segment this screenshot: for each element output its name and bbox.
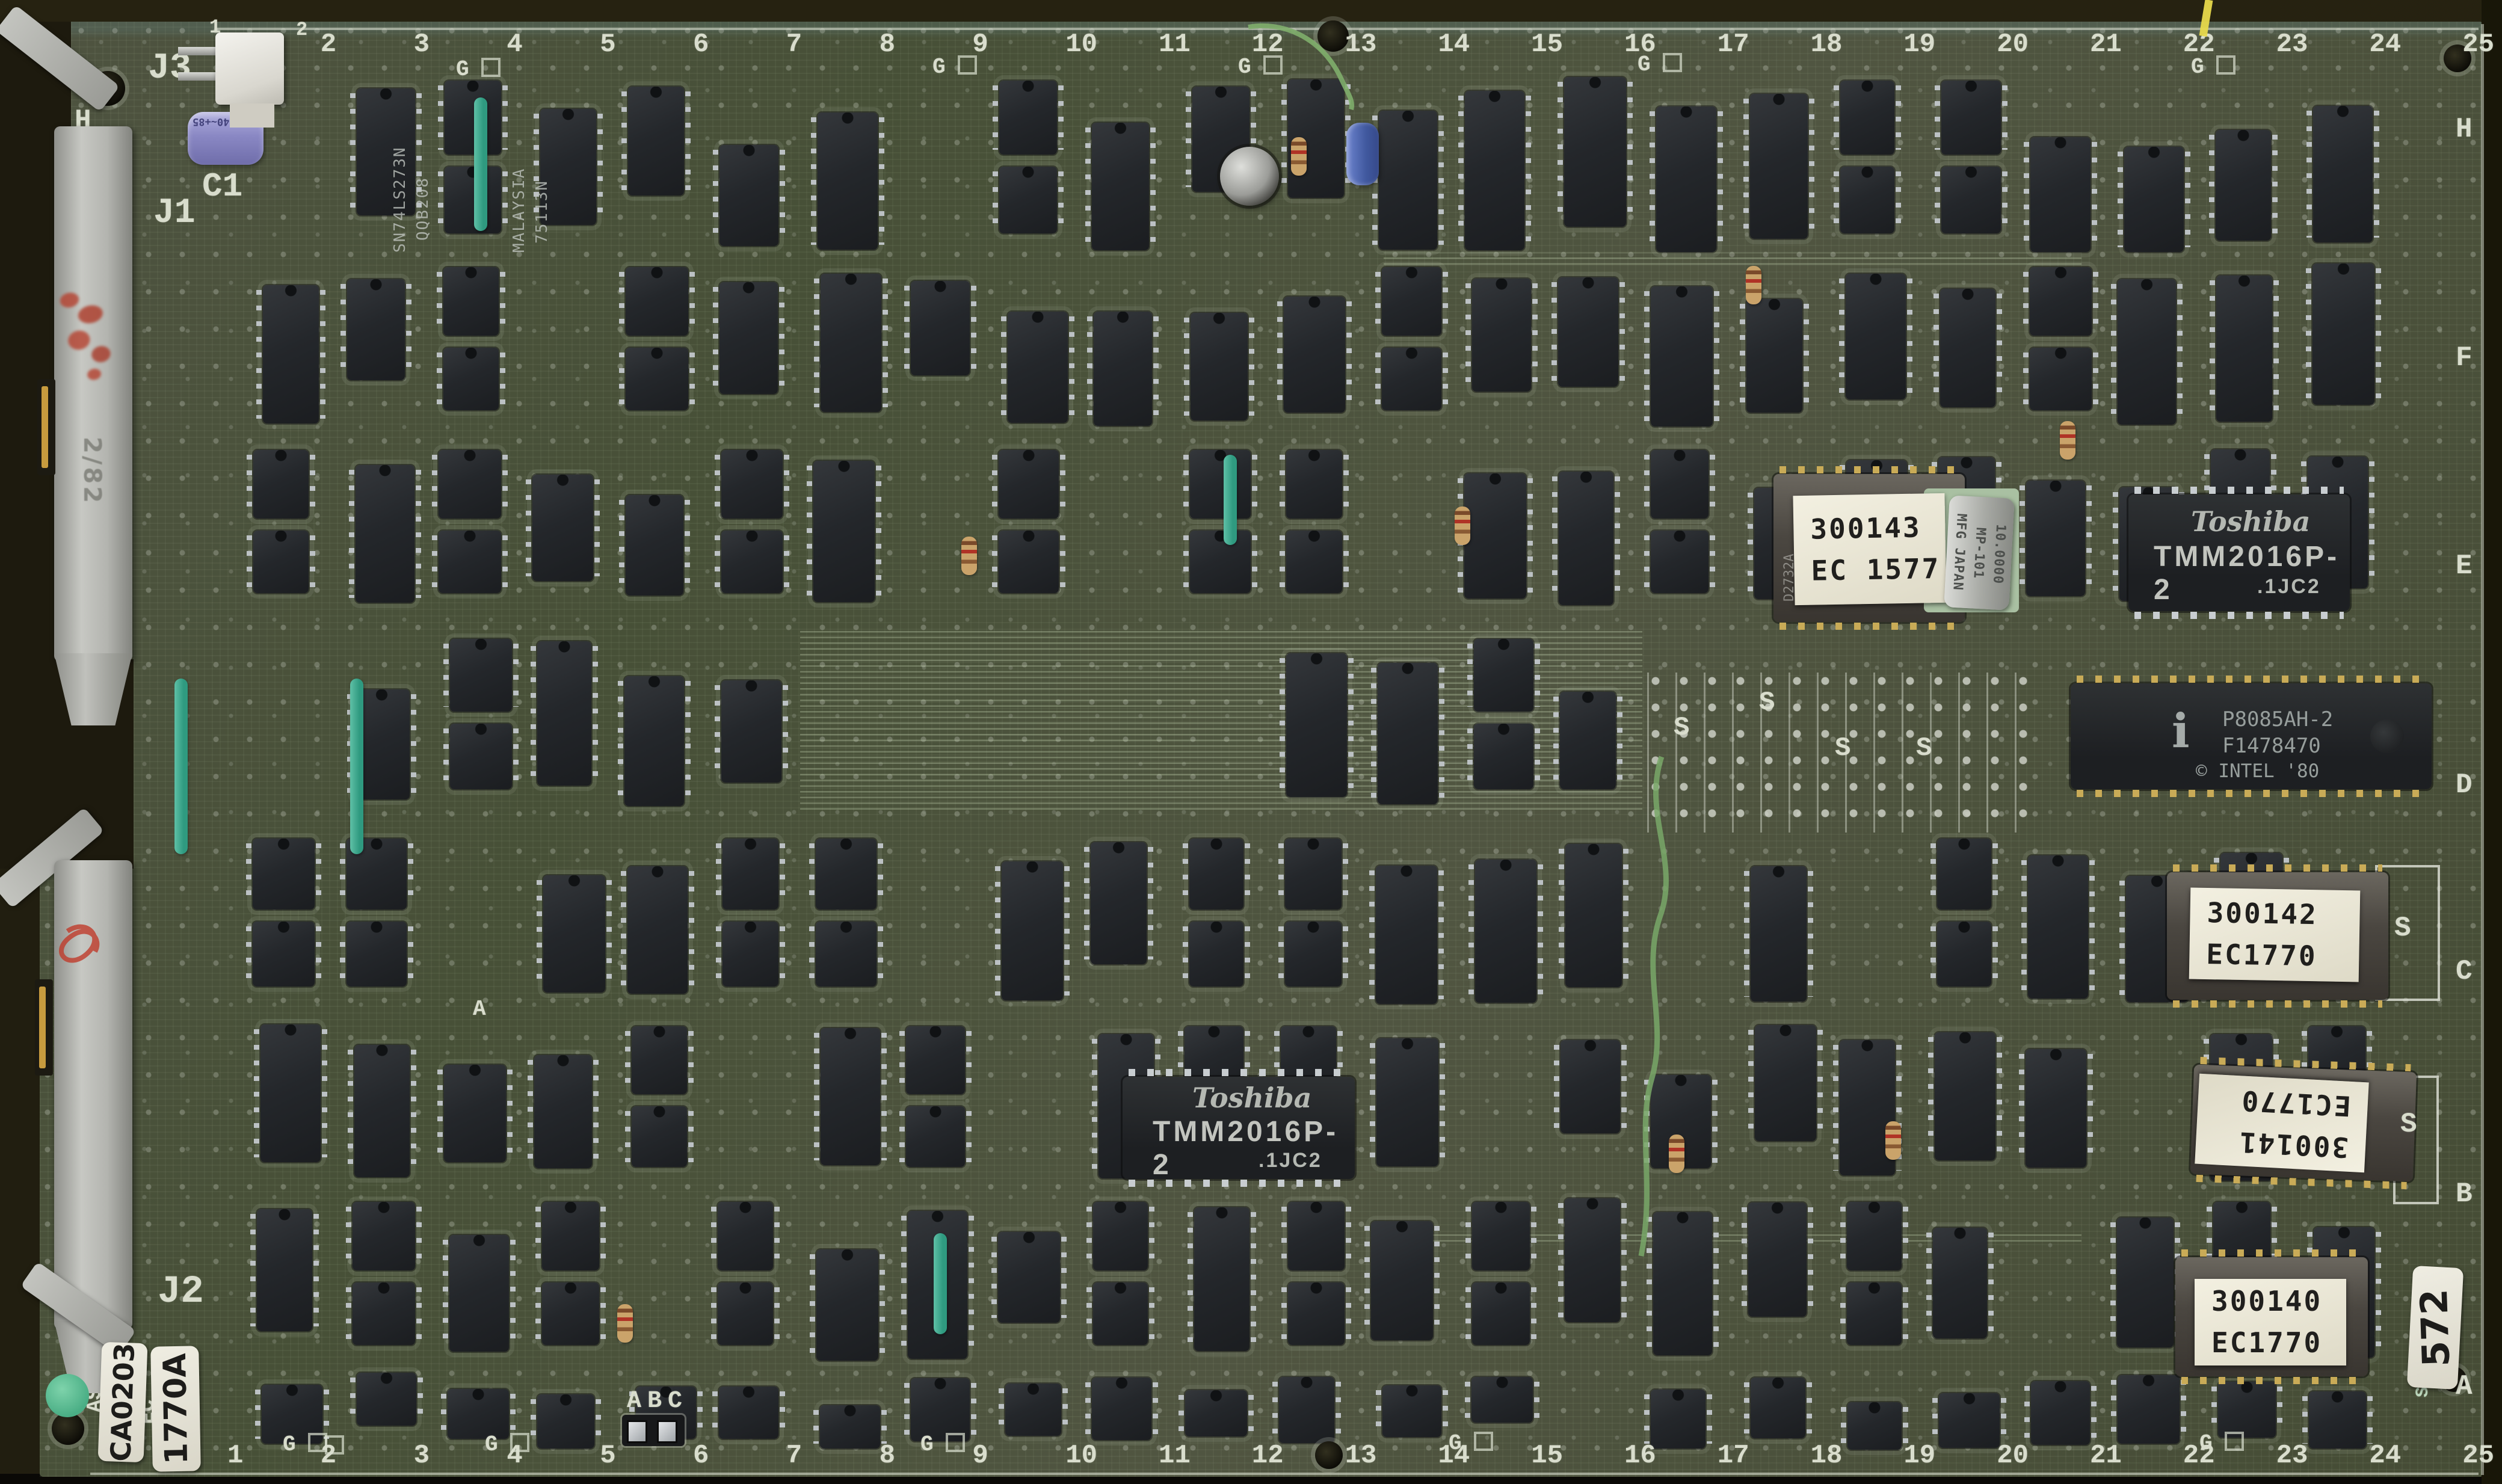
ic-chip [1094, 312, 1152, 426]
ic-chip [2030, 348, 2092, 410]
grid-number-top-7: 7 [786, 31, 802, 58]
ic-chip [816, 922, 877, 986]
ic-chip [537, 641, 592, 786]
ic-chip [906, 1106, 966, 1168]
ic-chip [1382, 348, 1441, 410]
ic-chip [1288, 1282, 1345, 1344]
ic-chip [1371, 1221, 1433, 1340]
ic-chip [263, 285, 319, 423]
grid-number-bottom-8: 8 [880, 1442, 895, 1469]
grid-number-bottom-24: 24 [2369, 1442, 2401, 1469]
ic-chip [1284, 297, 1345, 413]
eprom-label-line1: 300142 [2207, 892, 2360, 936]
silk-c1-label: C1 [202, 170, 242, 203]
logic-chip-marking: QQB208 [414, 177, 432, 241]
grid-number-bottom-12: 12 [1252, 1442, 1284, 1469]
ic-chip [1935, 1032, 1995, 1160]
ic-chip [1755, 1025, 1816, 1141]
ic-chip [1376, 1038, 1438, 1166]
ram-brand: Toshiba [1192, 1082, 1311, 1114]
ground-marker-bottom: G [485, 1434, 498, 1456]
ic-chip [1474, 724, 1533, 789]
pencil-note-2-82: 2/82 [78, 437, 106, 505]
grid-number-bottom-3: 3 [414, 1442, 430, 1469]
ic-chip [449, 1235, 510, 1352]
grid-number-bottom-13: 13 [1345, 1442, 1377, 1469]
ic-chip [439, 531, 501, 593]
silk-section-a: A [473, 999, 486, 1020]
grid-number-top-22: 22 [2183, 31, 2215, 58]
option-jumper-block [622, 1415, 685, 1446]
teal-jumper-component [934, 1233, 947, 1334]
grid-number-top-14: 14 [1438, 31, 1470, 58]
ram-code: .1JC2 [1259, 1149, 1322, 1172]
silk-abc-jumper-label: ABC [627, 1390, 688, 1414]
ground-marker-top: G [1238, 57, 1251, 78]
grid-number-bottom-11: 11 [1159, 1442, 1191, 1469]
ic-chip [257, 1209, 312, 1331]
ic-chip [626, 348, 688, 410]
ic-chip [1465, 91, 1524, 250]
ic-chip [2026, 1049, 2087, 1167]
grid-number-top-9: 9 [972, 31, 988, 58]
ic-chip [2124, 147, 2184, 253]
eprom-label-300141-upside-down: 300141 EC1770 [2195, 1074, 2368, 1173]
ground-marker-box [2225, 1432, 2244, 1451]
ground-marker-bottom: G [920, 1434, 934, 1456]
ground-marker-box [1263, 55, 1283, 75]
ic-chip [1846, 274, 1906, 399]
ic-chip [353, 1202, 415, 1270]
ic-chip [2216, 130, 2271, 240]
metal-can-transistor [1220, 147, 1279, 206]
resistor [1455, 506, 1470, 545]
ic-chip [1288, 1202, 1345, 1270]
grid-number-top-4: 4 [507, 31, 522, 58]
ic-chip [1933, 1228, 1987, 1338]
eprom-label-line2: EC1770 [2211, 1322, 2346, 1364]
ic-chip [2030, 267, 2092, 336]
grid-number-top-19: 19 [1903, 31, 1935, 58]
ground-marker-bottom: G [1449, 1433, 1462, 1455]
ic-chip [1279, 1377, 1334, 1443]
ic-chip [1558, 277, 1618, 387]
ic-chip [1751, 866, 1807, 1001]
sticker-ec-number-text: 1770A [156, 1353, 194, 1465]
ic-chip [1847, 1402, 1902, 1449]
ic-chip [1008, 312, 1068, 423]
eprom-label-line1: 300143 [1810, 506, 1946, 550]
ground-marker-bottom: G [2199, 1433, 2213, 1455]
sticker-asm-number: CA0203 [98, 1342, 148, 1463]
eprom-label-line2: EC1770 [2206, 934, 2359, 978]
ic-chip [1092, 1378, 1151, 1440]
ic-chip [1285, 922, 1342, 986]
ic-chip [532, 475, 593, 581]
grid-number-bottom-6: 6 [693, 1442, 709, 1469]
ground-marker-top: G [1638, 54, 1651, 76]
grid-number-top-11: 11 [1159, 31, 1191, 58]
ic-chip [1189, 839, 1243, 910]
crystal-marking: 10.0000 MP-101 MFG JAPAN [1947, 513, 2011, 593]
eprom-label-300142: 300142 EC1770 [2189, 888, 2361, 982]
ic-chip [450, 639, 512, 712]
ic-chip [624, 676, 684, 806]
ic-chip [1847, 1282, 1902, 1344]
grid-number-top-13: 13 [1345, 31, 1377, 58]
ic-chip [354, 1045, 410, 1178]
silk-j1-label: J1 [153, 196, 196, 231]
ic-chip [347, 922, 407, 986]
cpu-intel-8085: i P8085AH-2 F1478470 © INTEL '80 [2071, 683, 2432, 789]
edge-letter-C: C [2456, 958, 2473, 985]
ic-chip [1382, 267, 1441, 336]
grid-number-top-18: 18 [1811, 31, 1843, 58]
ic-chip [260, 1024, 321, 1162]
ic-chip [1565, 844, 1622, 987]
ic-chip [353, 1282, 415, 1344]
ic-chip [1286, 450, 1342, 519]
spare-marker-s: S [1916, 735, 1932, 762]
grid-number-top-15: 15 [1531, 31, 1563, 58]
ic-chip [2309, 1391, 2366, 1449]
eprom-label-300140: 300140 EC1770 [2195, 1279, 2346, 1365]
teal-jumper-component [474, 97, 487, 231]
spare-marker-s: S [2394, 914, 2411, 942]
ic-chip [1651, 450, 1708, 519]
ic-chip [721, 680, 781, 782]
ic-chip [1651, 286, 1713, 426]
bus-trace-band [1384, 253, 2081, 265]
ic-chip [632, 1106, 686, 1168]
grid-number-bottom-19: 19 [1903, 1442, 1935, 1469]
teal-jumper-component [174, 679, 188, 854]
ic-chip [999, 531, 1059, 593]
connector-j3-body [215, 32, 284, 105]
ic-chip [1189, 922, 1243, 986]
ground-marker-box [481, 58, 501, 77]
ic-chip [820, 1405, 880, 1449]
grid-number-bottom-7: 7 [786, 1442, 802, 1469]
ground-marker-box [1663, 53, 1682, 72]
ic-chip [356, 465, 414, 603]
ic-chip [2216, 276, 2273, 422]
grid-number-bottom-1: 1 [227, 1442, 243, 1469]
ic-chip [1651, 1390, 1705, 1449]
ram-code: .1JC2 [2257, 575, 2321, 599]
ic-chip [626, 495, 683, 596]
spare-marker-s: S [1835, 735, 1850, 762]
ic-chip [718, 1282, 772, 1344]
ground-marker-top: G [2191, 57, 2204, 78]
grid-number-top-23: 23 [2276, 31, 2308, 58]
ic-chip [1091, 842, 1147, 964]
ic-chip [1941, 81, 2001, 155]
ic-chip [2313, 263, 2374, 404]
ic-chip [1559, 472, 1613, 605]
ic-chip [632, 1026, 686, 1094]
sticker-asm-number-text: CA0203 [105, 1342, 141, 1462]
grid-number-top-3: 3 [414, 31, 430, 58]
connector-j1-contact-slot [37, 379, 55, 475]
ic-chip [1746, 299, 1803, 413]
grid-number-bottom-9: 9 [972, 1442, 988, 1469]
grid-number-top-12: 12 [1252, 31, 1284, 58]
ic-chip [1379, 111, 1438, 250]
ic-chip [721, 531, 783, 593]
logic-chip-marking: SN74LS273N [391, 146, 409, 253]
jumper-pin [627, 1420, 647, 1443]
board-right-edge-highlight [2481, 24, 2484, 1475]
ic-chip [1376, 866, 1437, 1004]
ic-chip [534, 1055, 593, 1168]
silk-border-bottom [90, 1473, 2479, 1475]
ic-chip [1472, 1202, 1530, 1270]
ic-chip [1464, 473, 1526, 599]
ic-chip [439, 450, 501, 519]
connector-j3-pin [178, 47, 220, 55]
teal-jumper-component [350, 679, 363, 854]
ic-chip [2030, 137, 2091, 252]
crystal-origin: MFG JAPAN [1947, 513, 1971, 591]
capacitor-blue [1346, 123, 1379, 185]
green-dot-sticker [46, 1374, 89, 1417]
ic-chip [1653, 1212, 1712, 1355]
ic-chip [1751, 1378, 1805, 1438]
ground-marker-box [946, 1433, 965, 1452]
ic-chip [1185, 1390, 1247, 1436]
ic-chip [1191, 313, 1248, 420]
spare-marker-s: S [1674, 715, 1689, 741]
crystal-frequency: 10.0000 [1987, 515, 2011, 593]
resistor [1746, 266, 1761, 304]
resistor [617, 1304, 633, 1343]
grid-number-top-2: 2 [321, 31, 336, 58]
ground-marker-top: G [456, 59, 469, 81]
edge-letter-E: E [2456, 552, 2473, 580]
ic-chip [444, 1065, 506, 1162]
ic-chip [1748, 1202, 1806, 1317]
ic-chip [1190, 531, 1251, 593]
eprom-label-line1: 300140 [2211, 1281, 2346, 1322]
ic-chip [911, 281, 969, 376]
connector-j2 [54, 860, 132, 1329]
edge-letter-B: B [2456, 1180, 2473, 1208]
intel-logo-icon: i [2172, 704, 2190, 759]
logic-chip-marking: MALAYSIA [510, 168, 528, 253]
spare-marker-s: S [2400, 1110, 2417, 1138]
resistor [1669, 1135, 1684, 1173]
edge-letter-D: D [2456, 771, 2473, 799]
ic-chip [1560, 692, 1616, 789]
ic-chip [1472, 1282, 1530, 1344]
ic-chip [1093, 1202, 1148, 1270]
ic-chip [1656, 106, 1716, 252]
ic-chip [1093, 1282, 1148, 1344]
connector-j3-pin [178, 72, 220, 81]
ram-part: TMM2016P-2 [1153, 1115, 1355, 1181]
ic-chip [1840, 167, 1894, 233]
ic-chip [443, 348, 499, 410]
grid-number-bottom-5: 5 [600, 1442, 615, 1469]
ground-marker-box [1474, 1432, 1493, 1451]
ic-chip [816, 1249, 878, 1361]
ground-marker-box [510, 1433, 529, 1452]
cpu-lot-code: F1478470 [2222, 733, 2321, 759]
ic-chip [1194, 1207, 1249, 1351]
ic-chip [542, 1282, 599, 1344]
ic-chip [1937, 922, 1992, 986]
ic-chip [1382, 1385, 1441, 1437]
ic-chip [628, 87, 684, 196]
grid-number-top-10: 10 [1065, 31, 1097, 58]
ic-chip [821, 1028, 880, 1165]
ic-chip [1847, 1202, 1902, 1270]
grid-number-bottom-18: 18 [1811, 1442, 1843, 1469]
cpu-dimple [2370, 719, 2404, 753]
ic-chip [1565, 1198, 1620, 1322]
ic-chip [1564, 77, 1627, 227]
edge-letter-A: A [2456, 1373, 2473, 1400]
mounting-hole [52, 1412, 84, 1445]
silk-j3-label: J3 [148, 51, 191, 87]
cpu-copyright: © INTEL '80 [2196, 759, 2319, 783]
connector-j3-base [230, 103, 274, 128]
ic-chip [999, 167, 1057, 233]
ic-chip [626, 267, 688, 336]
grid-number-bottom-15: 15 [1531, 1442, 1563, 1469]
ic-chip [718, 1202, 772, 1270]
ic-chip [2118, 1375, 2179, 1444]
capacitor-c1-marking: -40~+85 [193, 115, 236, 128]
ground-marker-box [2216, 55, 2235, 75]
spare-marker-s: S [1759, 689, 1775, 716]
ic-chip [999, 81, 1057, 155]
eprom-chip-marking: D2732A [1782, 554, 1797, 602]
board-right-edge-shadow [2482, 0, 2502, 1484]
resistor [2060, 421, 2075, 460]
ic-chip [1750, 94, 1808, 238]
ic-chip [2117, 1218, 2174, 1348]
ic-chip [2118, 279, 2176, 424]
sticker-serial-text: 572 [2412, 1288, 2458, 1367]
ic-chip [719, 1387, 779, 1439]
ic-chip [818, 112, 878, 250]
ic-chip [719, 282, 778, 395]
ic-chip [1475, 860, 1536, 1003]
ic-chip [1092, 123, 1149, 250]
grid-number-bottom-25: 25 [2462, 1442, 2494, 1469]
ic-chip [2313, 106, 2373, 242]
ic-chip [450, 724, 512, 789]
eprom-label-line2: EC1770 [2197, 1077, 2352, 1127]
ground-marker-box [325, 1435, 344, 1455]
ic-chip [253, 531, 308, 593]
ic-chip [998, 1232, 1060, 1323]
ic-chip [1005, 1384, 1061, 1436]
resistor [1291, 137, 1307, 176]
ic-chip [1471, 1377, 1533, 1423]
ic-chip [723, 922, 778, 986]
eprom-label-line2: EC 1577 [1811, 548, 1946, 592]
ic-chip [542, 1202, 599, 1270]
ic-chip [816, 839, 877, 910]
cpu-part-number: P8085AH-2 [2222, 706, 2333, 733]
ic-chip [1286, 531, 1342, 593]
grid-number-bottom-10: 10 [1065, 1442, 1097, 1469]
sticker-ec-number: 1770A [150, 1346, 201, 1471]
ic-chip [906, 1026, 966, 1094]
ic-chip [1378, 663, 1437, 804]
grid-number-top-8: 8 [880, 31, 895, 58]
silk-j2-label: J2 [158, 1273, 204, 1311]
grid-number-top-21: 21 [2090, 31, 2122, 58]
grid-number-top-6: 6 [693, 31, 709, 58]
ic-chip [1937, 839, 1992, 910]
ic-chip [1286, 653, 1347, 797]
teal-jumper-component [1224, 455, 1237, 545]
grid-number-top-5: 5 [600, 31, 615, 58]
ic-chip [253, 839, 315, 910]
ic-chip [357, 1373, 416, 1426]
resistor [1885, 1121, 1901, 1160]
jumper-pin [657, 1420, 677, 1443]
ic-chip [537, 1394, 594, 1449]
ic-chip [627, 866, 687, 993]
grid-number-bottom-23: 23 [2276, 1442, 2308, 1469]
resistor [961, 537, 977, 575]
eprom-label-300143: 300143 EC 1577 [1793, 493, 1946, 605]
ic-chip [999, 450, 1059, 519]
ic-chip [821, 274, 881, 412]
ic-chip [1651, 531, 1708, 593]
grid-number-top-25: 25 [2462, 31, 2494, 58]
eprom-label-line1: 300141 [2195, 1119, 2350, 1168]
ic-chip [721, 450, 783, 519]
ic-chip [445, 167, 501, 233]
ic-chip [2026, 481, 2085, 597]
ic-chip [448, 1389, 508, 1439]
ic-chip [2218, 1382, 2276, 1437]
ic-chip [443, 267, 499, 336]
grid-number-bottom-16: 16 [1624, 1442, 1656, 1469]
ic-chip [2028, 855, 2088, 999]
ic-chip [1940, 289, 1995, 407]
grid-number-top-17: 17 [1718, 31, 1749, 58]
ram-brand: Toshiba [2191, 505, 2310, 538]
grid-number-top-20: 20 [1997, 31, 2029, 58]
connector-j1 [54, 126, 132, 662]
ic-chip [1840, 81, 1894, 155]
ic-chip [1472, 279, 1532, 392]
grid-number-bottom-21: 21 [2090, 1442, 2122, 1469]
grid-number-top-24: 24 [2369, 31, 2401, 58]
ground-marker-box [958, 55, 977, 75]
ic-chip [543, 875, 606, 993]
ic-chip [253, 922, 315, 986]
ic-chip [1285, 839, 1342, 910]
ic-chip [813, 461, 875, 602]
ic-chip [1941, 167, 2001, 233]
ram-toshiba-1: Toshiba TMM2016P-2 .1JC2 [2128, 494, 2350, 611]
grid-number-bottom-17: 17 [1718, 1442, 1749, 1469]
ic-chip [253, 450, 308, 519]
edge-letter-H: H [2456, 115, 2473, 143]
ground-marker-bottom: G [283, 1434, 296, 1456]
ic-chip [1939, 1393, 2000, 1448]
ic-chip [445, 81, 501, 155]
ic-chip [911, 1378, 970, 1442]
